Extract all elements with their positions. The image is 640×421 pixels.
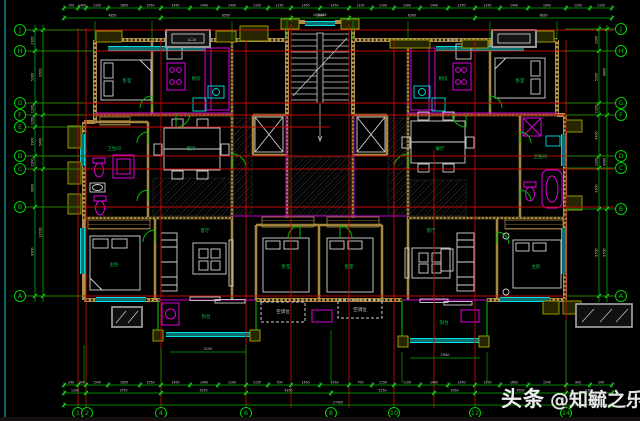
axis-bubble-label: E: [18, 123, 22, 131]
axis-bubble-label: C: [18, 165, 23, 173]
bottom-edge-strip: [0, 417, 640, 421]
dim-text: 5200: [595, 73, 599, 81]
dim-text: 1400: [200, 381, 208, 385]
dim-text: 1200: [595, 105, 599, 113]
kitchen-counter-left: [205, 48, 229, 110]
sink-right: [414, 86, 430, 98]
viewport-edge-line: [4, 0, 6, 421]
axis-bubble-label: J: [619, 25, 622, 33]
axis-bubble-label: 4: [159, 409, 163, 417]
axis-bubble-label: C: [619, 164, 624, 172]
dim-text: 240: [68, 381, 74, 385]
axis-bubble-label: H: [619, 47, 624, 55]
shower-left: [113, 155, 134, 178]
dim-text: 1400: [430, 381, 438, 385]
room-label: 厨房: [439, 75, 448, 82]
room-label: 卧室: [123, 77, 132, 84]
dim-text: 4100: [595, 184, 599, 192]
dim-text: 1050: [146, 4, 154, 8]
dim-text: 4250: [199, 389, 207, 393]
dim-text: 1450: [330, 381, 338, 385]
room-label: 卧室: [345, 263, 354, 270]
dim-text: 1300: [403, 4, 411, 8]
dim-text: 1450: [330, 4, 338, 8]
dim-text: 1150: [379, 381, 387, 385]
dim-text: 1200: [574, 4, 582, 8]
room-label: 主卧: [532, 263, 541, 270]
sofa-left: [161, 233, 177, 291]
dim-text: 1100: [71, 389, 79, 393]
dim-text: 1100: [597, 4, 605, 8]
dim-text: 27400: [333, 401, 343, 405]
dim-text: 1400: [78, 4, 86, 8]
dim-text: 2900: [31, 137, 35, 145]
staircase: [291, 33, 349, 141]
dim-text: 3800: [31, 184, 35, 192]
room-label: 餐厅: [436, 145, 445, 152]
dim-text: 700: [276, 381, 282, 385]
stove-right: [453, 63, 471, 90]
dim-text: 4850: [108, 14, 116, 18]
coffee-table-right: [441, 249, 453, 271]
room-label: 卫生间: [107, 145, 121, 152]
room-label: 客厅: [201, 227, 210, 234]
dim-text: 5200: [31, 73, 35, 81]
axis-bubble-label: F: [18, 111, 22, 119]
sofa-right: [457, 233, 474, 291]
axis-bubble-label: H: [18, 47, 23, 55]
watermark: 头条@知毓之乐: [501, 383, 640, 413]
dim-text: 700: [68, 4, 74, 8]
ac-unit: [461, 310, 479, 322]
dim-text: 4100: [595, 131, 599, 139]
dim-text: 1100: [228, 381, 236, 385]
dim-text: 1350: [457, 4, 465, 8]
dim-text: 6300: [408, 14, 416, 18]
axis-bubble-label: 12: [471, 409, 479, 417]
dim-text: 1050: [483, 381, 491, 385]
dim-text: 1150: [253, 381, 261, 385]
axis-bubble-label: 6: [244, 409, 248, 417]
dim-text: 1200: [595, 158, 599, 166]
room-label: 客厅: [427, 227, 436, 234]
dim-text: 1400: [510, 4, 518, 8]
sink-left: [208, 86, 224, 98]
dim-text: 1450: [457, 381, 465, 385]
square-table-left: [193, 243, 226, 274]
dim-text: 9400: [603, 158, 607, 166]
dim-text: 1540: [93, 381, 101, 385]
dim-text: 1100: [93, 4, 101, 8]
dim-text: 6850: [539, 14, 547, 18]
dim-text: 3750: [119, 389, 127, 393]
window-code-label: LC2428: [313, 13, 326, 17]
room-label: 阳台: [440, 319, 449, 326]
dim-text: 1400: [228, 4, 236, 8]
window-code-label: LC15: [188, 38, 197, 42]
dim-text: 700: [357, 381, 363, 385]
room-label: 空调位: [353, 306, 367, 313]
dim-text: 1200: [31, 117, 35, 125]
room-label: 阳台: [202, 313, 211, 320]
dim-text: 1100: [253, 4, 261, 8]
dim-text: 8700: [603, 248, 607, 256]
axis-bubble-label: B: [18, 203, 22, 211]
window-code-label: 2940: [441, 353, 450, 357]
dim-text: 1900: [543, 4, 551, 8]
dim-text: 1450: [171, 4, 179, 8]
dim-text: 8700: [595, 248, 599, 256]
dim-text: 4250: [284, 389, 292, 393]
room-label: 主卧: [110, 261, 119, 268]
square-table-right: [412, 248, 450, 278]
dim-text: 1450: [301, 4, 309, 8]
dim-text: 2100: [31, 36, 35, 44]
room-label: 厨房: [192, 75, 201, 82]
dining-table-right: [402, 112, 474, 172]
dim-text: 6500: [222, 14, 230, 18]
room-label: 餐厅: [187, 145, 196, 152]
floorplan-svg: 7001400110016001050145014001400110011501…: [0, 0, 640, 421]
dim-text: 1200: [31, 105, 35, 113]
washing-machine: [162, 303, 179, 325]
bathtub-right: [542, 170, 562, 208]
axis-bubble-label: 8: [329, 409, 333, 417]
ac-unit: [312, 310, 332, 322]
kitchen-counter-right: [411, 48, 435, 110]
axis-bubble-label: F: [619, 111, 623, 119]
dim-text: 1450: [301, 381, 309, 385]
bath-sink-left: [90, 183, 105, 192]
axis-bubble-label: 1: [76, 409, 80, 417]
axis-bubble-label: A: [619, 292, 624, 300]
axis-bubble-label: D: [17, 152, 22, 160]
dim-text: 1150: [275, 4, 283, 8]
bed-bottom-right: [503, 233, 561, 295]
dim-text: 8500: [39, 68, 43, 76]
dim-text: 1400: [430, 4, 438, 8]
toilet: [93, 158, 105, 177]
dim-text: 5400: [39, 138, 43, 146]
dim-text: 1100: [379, 4, 387, 8]
axis-bubble-label: G: [17, 99, 22, 107]
axis-bubble-label: D: [618, 152, 623, 160]
dim-text: 1300: [31, 158, 35, 166]
toilet: [94, 196, 106, 215]
room-label: 卧室: [282, 263, 291, 270]
stove-left: [167, 63, 185, 90]
dim-text: 2050: [450, 389, 458, 393]
axis-bubble-label: J: [18, 26, 21, 34]
dim-text: 1450: [171, 381, 179, 385]
dim-text: 1250: [483, 4, 491, 8]
basin-right: [546, 136, 560, 146]
axis-bubble-label: 2: [85, 409, 89, 417]
axis-bubble-label: G: [618, 99, 623, 107]
dim-text: 1600: [120, 4, 128, 8]
dim-text: 8600: [603, 68, 607, 76]
dim-text: 5150: [378, 389, 386, 393]
dim-text: 8900: [31, 247, 35, 255]
dim-text: 1050: [146, 381, 154, 385]
room-label: 卫生间: [533, 153, 547, 160]
axis-bubble-label: A: [18, 292, 23, 300]
dim-text: 1100: [403, 381, 411, 385]
room-label: 空调位: [276, 308, 290, 315]
dim-text: 1150: [356, 4, 364, 8]
cad-canvas: 7001400110016001050145014001400110011501…: [0, 0, 640, 421]
window-code-label: LC15: [448, 38, 457, 42]
axis-bubble-label: 10: [390, 409, 398, 417]
dim-text: 2200: [595, 36, 599, 44]
dim-text: 1400: [200, 4, 208, 8]
watermark-handle: @知毓之乐: [550, 389, 640, 411]
room-label: 卧室: [516, 77, 525, 84]
watermark-brand: 头条: [501, 387, 545, 411]
dim-text: 1600: [120, 381, 128, 385]
hatched-floor-areas: [153, 118, 466, 216]
axis-bubble-label: B: [619, 205, 623, 213]
bed-top-right: [495, 58, 545, 98]
dim-text: 12700: [39, 227, 43, 237]
window-code-label: 3150: [204, 347, 213, 351]
